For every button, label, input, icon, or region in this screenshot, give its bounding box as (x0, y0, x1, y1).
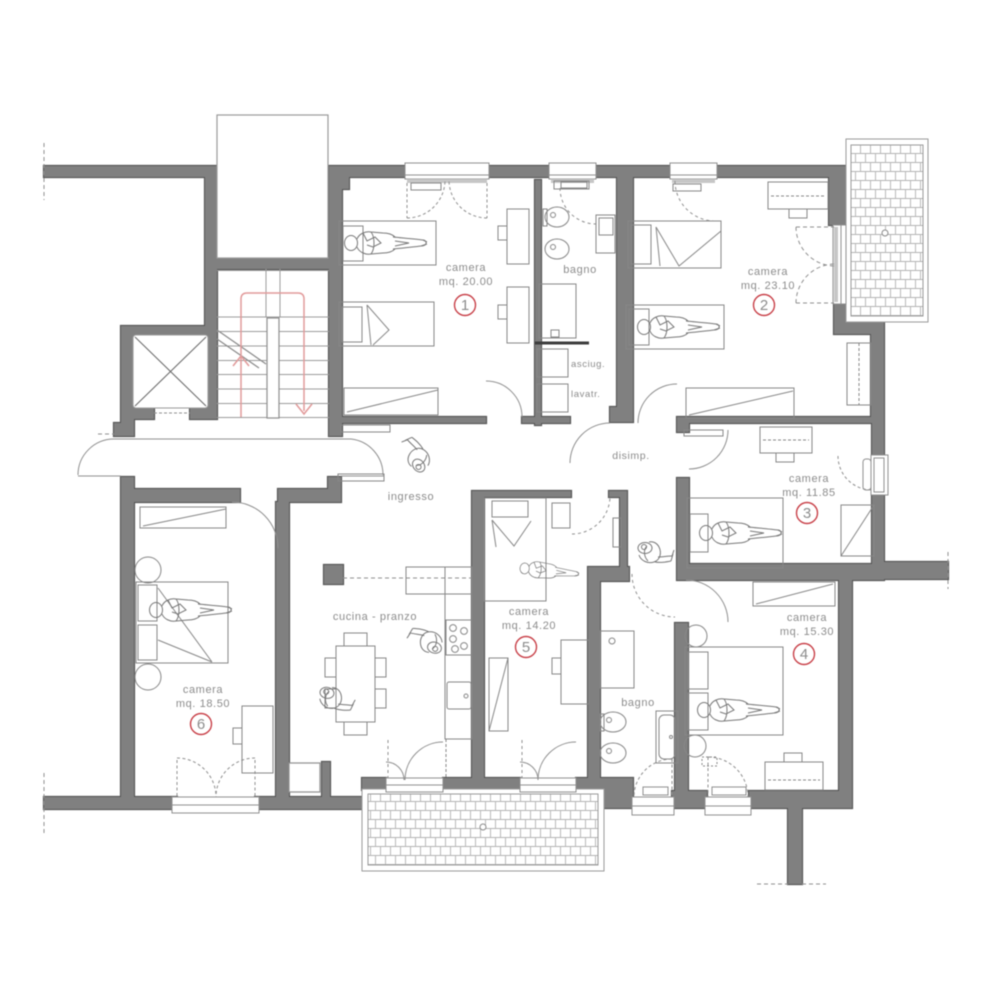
svg-text:camera: camera (748, 266, 789, 278)
svg-text:camera: camera (509, 606, 550, 618)
svg-text:mq. 18.50: mq. 18.50 (176, 698, 230, 710)
svg-text:4: 4 (800, 646, 808, 663)
svg-text:cucina - pranzo: cucina - pranzo (333, 611, 417, 623)
svg-text:bagno: bagno (563, 264, 597, 276)
svg-text:ingresso: ingresso (388, 491, 434, 503)
svg-text:mq. 23.10: mq. 23.10 (741, 280, 795, 292)
svg-text:mq. 15.30: mq. 15.30 (780, 626, 834, 638)
svg-text:camera: camera (446, 262, 487, 274)
svg-text:camera: camera (183, 684, 224, 696)
svg-text:2: 2 (760, 297, 768, 314)
svg-text:5: 5 (522, 639, 530, 656)
svg-text:camera: camera (789, 473, 830, 485)
svg-text:disimp.: disimp. (612, 450, 649, 462)
svg-text:bagno: bagno (621, 697, 655, 709)
svg-text:lavatr.: lavatr. (571, 389, 601, 400)
svg-text:1: 1 (461, 297, 469, 314)
svg-text:camera: camera (787, 612, 828, 624)
svg-text:mq. 14.20: mq. 14.20 (502, 620, 556, 632)
svg-text:mq. 11.85: mq. 11.85 (782, 487, 836, 499)
svg-text:asciug.: asciug. (571, 359, 605, 370)
svg-text:6: 6 (197, 716, 205, 733)
svg-text:3: 3 (803, 505, 811, 522)
svg-text:mq. 20.00: mq. 20.00 (439, 276, 493, 288)
